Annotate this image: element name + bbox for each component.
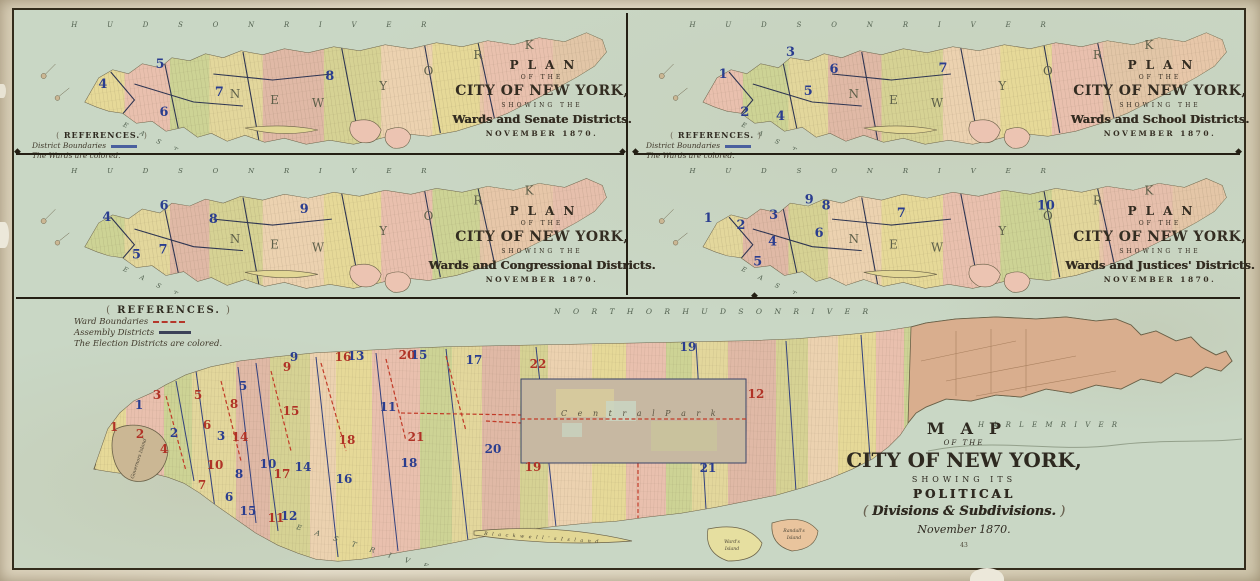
district-number: 1 [704, 211, 713, 226]
river-top-label: H U D S O N R I V E R [688, 167, 1059, 175]
ward-number: 2 [136, 427, 144, 441]
assembly-district-number: 17 [466, 353, 483, 367]
map-title-block: PLAN OF THE CITY OF NEW YORK, SHOWING TH… [1042, 204, 1260, 284]
ward-number: 18 [339, 433, 356, 447]
map-title-date: NOVEMBER 1870. [1042, 129, 1260, 138]
island-name-letter: W [931, 241, 944, 255]
ward-number: 5 [194, 388, 202, 402]
island-name-letter: Y [997, 224, 1006, 238]
island-name-letter: N [849, 232, 859, 246]
ward-number: 6 [203, 418, 211, 432]
references-large: REFERENCES. Ward Boundaries Assembly Dis… [74, 305, 264, 349]
island-name-letter: K [1144, 184, 1154, 198]
red-dashed-swatch [153, 321, 185, 323]
district-number: 4 [98, 77, 107, 92]
wards-island-label: Ward's [724, 539, 740, 545]
randalls-island-label: Randall's [782, 528, 805, 534]
north-hudson-river-label: N O R T H O R H U D S O N R I V E R [553, 307, 873, 316]
island-name-letter: K [525, 38, 535, 52]
panel-divider-horizontal: ◆◆ [634, 153, 1240, 155]
map-title-ofthe: OF THE [424, 74, 660, 82]
references-assembly-districts: Assembly Districts [74, 328, 264, 338]
panel-divider-horizontal: ◆ [16, 297, 1240, 299]
island-name-letter: W [312, 96, 325, 110]
ward-number: 21 [408, 430, 425, 444]
map-title-subject: Wards and Congressional Districts. [424, 258, 660, 272]
assembly-district-number: 20 [485, 442, 502, 456]
ward-number: 3 [153, 388, 161, 402]
assembly-district-number: 14 [295, 460, 312, 474]
assembly-district-number: 12 [281, 509, 298, 523]
island-name-letter: E [270, 93, 279, 107]
main-title-political: POLITICAL [828, 487, 1100, 501]
island-name-letter: N [230, 232, 240, 246]
references-heading: REFERENCES. [32, 130, 172, 140]
map-title-city: CITY OF NEW YORK, [1042, 229, 1260, 247]
central-park-label: C e n t r a l P a r k [561, 409, 720, 418]
district-number: 9 [300, 202, 309, 217]
references-district-boundaries: District Boundaries [32, 141, 172, 150]
map-sheet: H U D S O N R I V E RNEWYORKE A S T R I … [0, 0, 1260, 581]
district-number: 7 [215, 85, 224, 100]
river-top-label: H U D S O N R I V E R [70, 167, 440, 175]
district-number: 5 [753, 254, 762, 269]
harbor-islet [659, 73, 664, 78]
map-title-subject: Wards and Justices' Districts. [1042, 258, 1260, 272]
district-number: 6 [815, 226, 824, 241]
map-title-plan: PLAN [424, 58, 660, 73]
assembly-district-number: 15 [240, 504, 257, 518]
main-title-showing: SHOWING ITS [828, 475, 1100, 484]
blue-line-swatch [725, 145, 751, 148]
map-title-block: PLAN OF THE CITY OF NEW YORK, SHOWING TH… [424, 58, 660, 138]
map-title-showing: SHOWING THE [424, 248, 660, 256]
paper-chip [0, 84, 6, 98]
island-name-letter: Y [997, 79, 1006, 93]
ward-number: 19 [525, 460, 542, 474]
island-name-letter: N [230, 87, 240, 101]
ward-number: 7 [198, 478, 206, 492]
assembly-district-number: 13 [348, 349, 365, 363]
assembly-district-number: 3 [217, 429, 225, 443]
ward-number: 8 [230, 397, 238, 411]
district-number: 5 [156, 57, 165, 72]
map-title-showing: SHOWING THE [424, 102, 660, 110]
ward-number: 10 [207, 458, 224, 472]
main-title-city: CITY OF NEW YORK, [828, 448, 1100, 472]
assembly-district-number: 2 [170, 426, 178, 440]
map-title-city: CITY OF NEW YORK, [424, 229, 660, 247]
map-title-plan: PLAN [1042, 204, 1260, 219]
dark-line-swatch [159, 331, 191, 334]
assembly-district-number: 18 [401, 456, 418, 470]
district-number: 8 [209, 212, 218, 227]
map-title-city: CITY OF NEW YORK, [424, 83, 660, 101]
map-title-showing: SHOWING THE [1042, 102, 1260, 110]
district-number: 5 [132, 248, 141, 263]
island-name-letter: Y [378, 79, 387, 93]
harbor-islet [41, 219, 46, 224]
district-number: 6 [830, 62, 839, 77]
randalls-island: Randall'sIsland [772, 519, 818, 551]
harbor-islet [55, 96, 60, 101]
island-name-letter: E [889, 93, 898, 107]
map-title-date: NOVEMBER 1870. [424, 275, 660, 284]
panel-divider-horizontal: ◆◆ [16, 153, 624, 155]
panel-plan-congressional-districts: H U D S O N R I V E RNEWYORKE A S T R I … [16, 160, 620, 294]
district-number: 8 [822, 198, 831, 213]
district-number: 3 [786, 45, 795, 60]
district-number: 6 [160, 198, 169, 213]
harbor-islet [659, 219, 664, 224]
district-number: 7 [938, 61, 947, 76]
district-number: 1 [719, 67, 728, 82]
river-top-label: H U D S O N R I V E R [70, 21, 440, 29]
harbor-islet [41, 73, 46, 78]
references-small-left: REFERENCES. District Boundaries The Ward… [32, 130, 172, 160]
main-title-date: November 1870. [828, 523, 1100, 536]
river-top-label: H U D S O N R I V E R [688, 21, 1059, 29]
ward-number: 12 [748, 387, 765, 401]
map-title-block: PLAN OF THE CITY OF NEW YORK, SHOWING TH… [1042, 58, 1260, 138]
ward-number: 22 [530, 357, 547, 371]
island-name-letter: K [525, 183, 535, 197]
plate-number: 43 [828, 542, 1100, 549]
assembly-district-number: 6 [225, 490, 233, 504]
wards-island-label: Island [724, 546, 739, 552]
panel-main-map-political-divisions: N O R T H O R H U D S O N R I V E RC e n… [16, 301, 1242, 566]
district-number: 6 [160, 105, 169, 120]
district-number: 4 [102, 210, 111, 225]
district-number: 5 [804, 84, 813, 99]
east-river-island [1004, 272, 1030, 292]
main-title-map: MAP [828, 419, 1100, 438]
district-number: 9 [805, 192, 814, 207]
map-title-ofthe: OF THE [1042, 220, 1260, 228]
map-title-subject: Wards and School Districts. [1042, 112, 1260, 126]
paper-chip [0, 222, 9, 248]
assembly-district-number: 5 [239, 379, 247, 393]
assembly-district-number: 9 [290, 350, 298, 364]
references-heading: REFERENCES. [646, 130, 786, 140]
island-name-letter: Y [378, 224, 387, 238]
assembly-district-number: 15 [411, 348, 428, 362]
harbor-islet [55, 240, 60, 245]
district-number: 3 [769, 208, 778, 223]
wards-island: Ward'sIsland [707, 527, 762, 561]
district-number: 2 [740, 105, 749, 120]
ward-number: 1 [110, 420, 118, 434]
panel-divider-vertical [626, 13, 628, 295]
ward-number: 14 [232, 430, 249, 444]
island-name-letter: E [889, 238, 898, 252]
east-river-island [385, 272, 411, 292]
references-small-right: REFERENCES. District Boundaries The Ward… [646, 130, 786, 160]
main-title-block: MAP OF THE CITY OF NEW YORK, SHOWING ITS… [828, 419, 1100, 549]
map-title-block: PLAN OF THE CITY OF NEW YORK, SHOWING TH… [424, 204, 660, 284]
island-name-letter: N [849, 87, 859, 101]
island-name-letter: W [312, 241, 325, 255]
references-ward-boundaries: Ward Boundaries [74, 317, 264, 327]
map-title-date: NOVEMBER 1870. [424, 129, 660, 138]
assembly-district-number: 10 [260, 457, 277, 471]
upper-manhattan [908, 317, 1232, 423]
assembly-district-number: 21 [700, 461, 717, 475]
blue-line-swatch [111, 145, 137, 148]
east-river-island [1004, 128, 1030, 149]
harbor-islet [673, 240, 678, 245]
references-note: The Election Districts are colored. [74, 339, 264, 349]
map-title-plan: PLAN [424, 204, 660, 219]
island-name-letter: E [270, 238, 279, 252]
central-park: C e n t r a l P a r k [521, 379, 746, 463]
district-number: 8 [325, 69, 334, 84]
references-heading: REFERENCES. [74, 305, 264, 316]
harbor-islet [673, 96, 678, 101]
map-frame: H U D S O N R I V E RNEWYORKE A S T R I … [12, 8, 1246, 570]
assembly-district-number: 8 [235, 467, 243, 481]
island-name-letter: W [931, 96, 944, 110]
assembly-district-number: 19 [680, 340, 697, 354]
references-district-boundaries: District Boundaries [646, 141, 786, 150]
map-title-showing: SHOWING THE [1042, 248, 1260, 256]
main-title-ofthe: OF THE [828, 439, 1100, 447]
district-number: 7 [897, 206, 906, 221]
main-title-divisions: Divisions & Subdivisions. [828, 504, 1100, 519]
assembly-district-number: 11 [380, 400, 397, 414]
island-name-letter: K [1144, 38, 1154, 52]
map-title-date: NOVEMBER 1870. [1042, 275, 1260, 284]
district-number: 4 [768, 235, 777, 250]
blackwells-island: B l a c k w e l l ' s I s l a n d [474, 529, 632, 546]
map-title-plan: PLAN [1042, 58, 1260, 73]
map-title-ofthe: OF THE [424, 220, 660, 228]
panel-plan-justices-districts: H U D S O N R I V E RNEWYORKE A S T R I … [634, 160, 1240, 294]
assembly-district-number: 1 [135, 398, 143, 412]
ward-number: 4 [160, 442, 168, 456]
map-title-subject: Wards and Senate Districts. [424, 112, 660, 126]
district-number: 4 [776, 109, 785, 124]
map-title-city: CITY OF NEW YORK, [1042, 83, 1260, 101]
district-number: 7 [159, 243, 168, 258]
ward-number: 15 [283, 404, 300, 418]
map-title-ofthe: OF THE [1042, 74, 1260, 82]
district-number: 2 [736, 218, 745, 233]
assembly-district-number: 16 [336, 472, 353, 486]
randalls-island-label: Island [786, 535, 801, 541]
east-river-island [385, 128, 411, 149]
